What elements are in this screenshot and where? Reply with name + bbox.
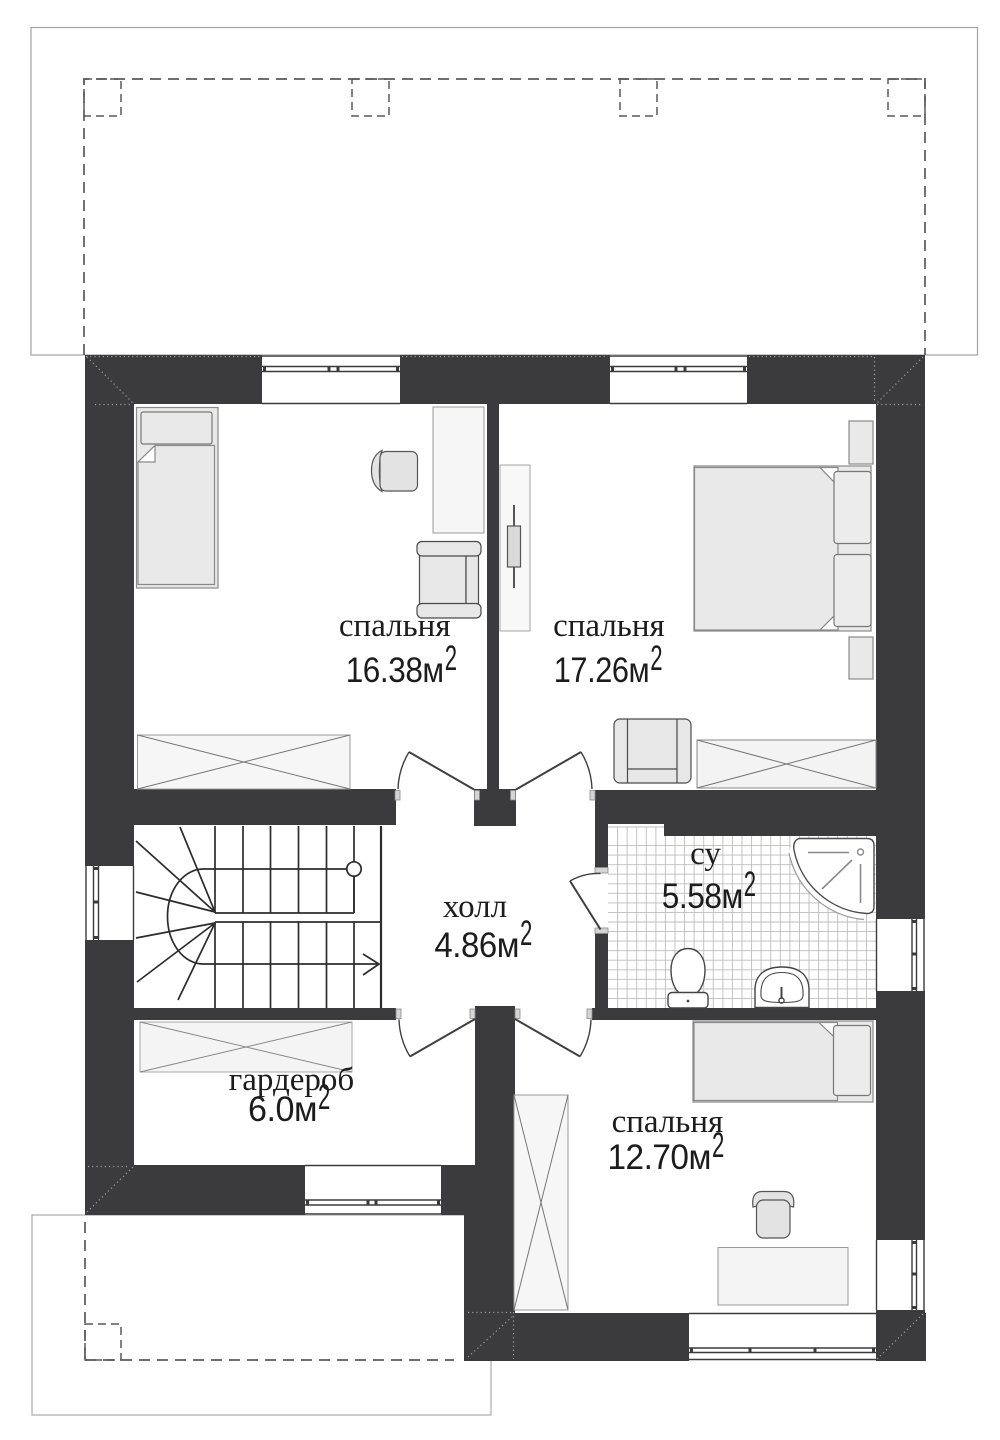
svg-text:16.38м: 16.38м (346, 651, 444, 690)
svg-text:2: 2 (445, 639, 457, 678)
svg-text:2: 2 (520, 914, 532, 953)
svg-text:спальня: спальня (553, 608, 665, 644)
svg-text:2: 2 (650, 639, 662, 678)
svg-text:спальня: спальня (339, 608, 451, 644)
svg-text:12.70м: 12.70м (607, 1138, 711, 1177)
svg-text:су: су (690, 836, 721, 872)
svg-text:17.26м: 17.26м (554, 651, 650, 690)
svg-text:холл: холл (443, 889, 507, 925)
svg-text:4.86м: 4.86м (434, 926, 519, 965)
svg-text:спальня: спальня (612, 1104, 724, 1140)
svg-text:2: 2 (744, 865, 756, 904)
svg-text:6.0м: 6.0м (248, 1090, 317, 1129)
svg-text:2: 2 (712, 1126, 724, 1165)
svg-text:5.58м: 5.58м (662, 877, 743, 916)
svg-text:2: 2 (318, 1078, 330, 1117)
